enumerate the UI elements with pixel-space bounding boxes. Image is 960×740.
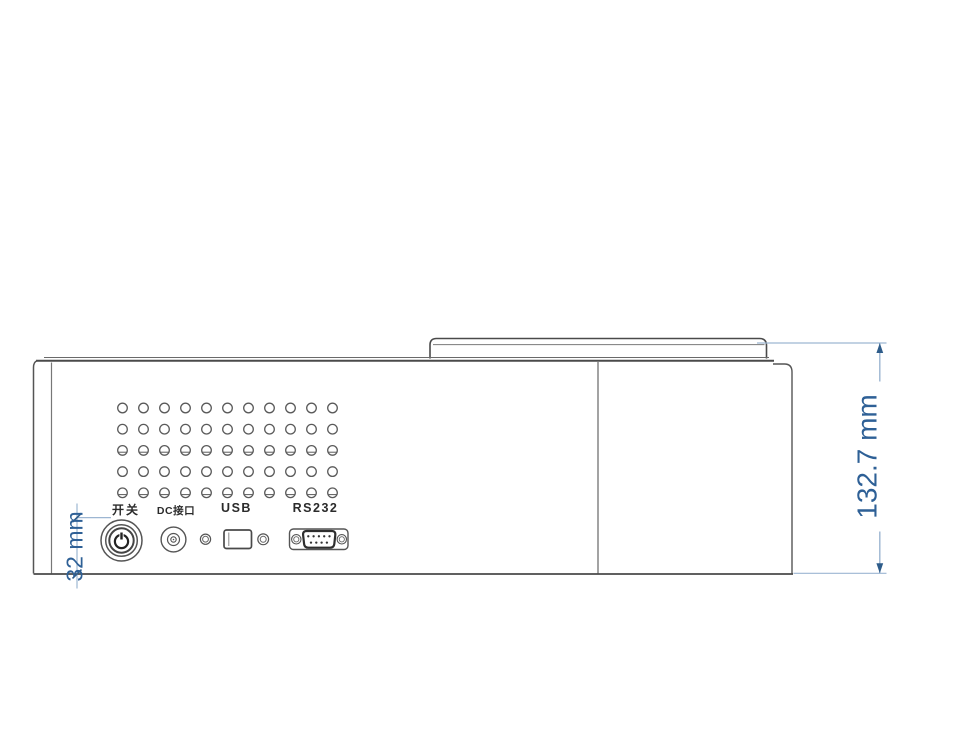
dsub-shell xyxy=(303,531,335,548)
vent-hole xyxy=(118,446,128,456)
vent-hole xyxy=(307,488,317,498)
vent-hole xyxy=(160,467,170,477)
vent-hole xyxy=(181,403,191,413)
rs232-port xyxy=(290,529,349,550)
vent-hole xyxy=(160,403,170,413)
vent-hole xyxy=(139,424,149,434)
vent-hole xyxy=(139,446,149,456)
usb-port-label: USB xyxy=(206,501,267,515)
vent-hole xyxy=(286,467,296,477)
vent-hole xyxy=(265,446,275,456)
vent-hole xyxy=(139,403,149,413)
vent-hole xyxy=(307,424,317,434)
vent-hole xyxy=(265,403,275,413)
vent-hole xyxy=(223,488,233,498)
vent-hole xyxy=(307,467,317,477)
vent-hole xyxy=(307,403,317,413)
vent-hole xyxy=(202,467,212,477)
vent-hole xyxy=(223,424,233,434)
vent-hole xyxy=(307,446,317,456)
vent-hole xyxy=(202,488,212,498)
vent-hole xyxy=(160,424,170,434)
vent-hole xyxy=(265,488,275,498)
vent-hole xyxy=(223,403,233,413)
vent-hole xyxy=(139,488,149,498)
vent-hole xyxy=(181,488,191,498)
vent-hole xyxy=(202,424,212,434)
usb-port xyxy=(200,530,268,549)
vent-hole xyxy=(286,488,296,498)
vent-hole xyxy=(244,488,254,498)
vent-hole xyxy=(202,446,212,456)
vent-hole xyxy=(118,403,128,413)
vent-grid xyxy=(118,403,338,497)
device-drawing xyxy=(0,0,960,740)
vent-hole xyxy=(118,488,128,498)
vent-hole xyxy=(160,446,170,456)
vent-hole xyxy=(286,403,296,413)
device-body xyxy=(34,358,794,575)
vent-hole xyxy=(139,467,149,477)
vent-hole xyxy=(244,403,254,413)
vent-hole xyxy=(244,446,254,456)
dimension-label-132mm: 132.7 mm xyxy=(852,382,883,532)
vent-hole xyxy=(244,467,254,477)
vent-hole xyxy=(223,467,233,477)
vent-hole xyxy=(181,467,191,477)
drawing-canvas: 开关 DC接口 USB RS232 32 mm 132.7 mm xyxy=(0,0,960,740)
vent-hole xyxy=(328,446,338,456)
vent-hole xyxy=(181,424,191,434)
vent-hole xyxy=(181,446,191,456)
rs232-port-label: RS232 xyxy=(285,501,346,515)
top-bar xyxy=(430,339,767,359)
vent-hole xyxy=(265,424,275,434)
vent-hole xyxy=(244,424,254,434)
dc-jack xyxy=(161,527,186,552)
vent-hole xyxy=(328,424,338,434)
vent-hole xyxy=(286,424,296,434)
vent-hole xyxy=(328,467,338,477)
dc-port-label: DC接口 xyxy=(146,503,206,518)
vent-hole xyxy=(118,424,128,434)
vent-hole xyxy=(223,446,233,456)
dimension-label-32mm: 32 mm xyxy=(63,492,88,602)
vent-hole xyxy=(328,488,338,498)
vent-hole xyxy=(286,446,296,456)
vent-hole xyxy=(328,403,338,413)
vent-hole xyxy=(118,467,128,477)
vent-hole xyxy=(160,488,170,498)
vent-hole xyxy=(202,403,212,413)
vent-hole xyxy=(265,467,275,477)
power-button xyxy=(101,520,142,561)
